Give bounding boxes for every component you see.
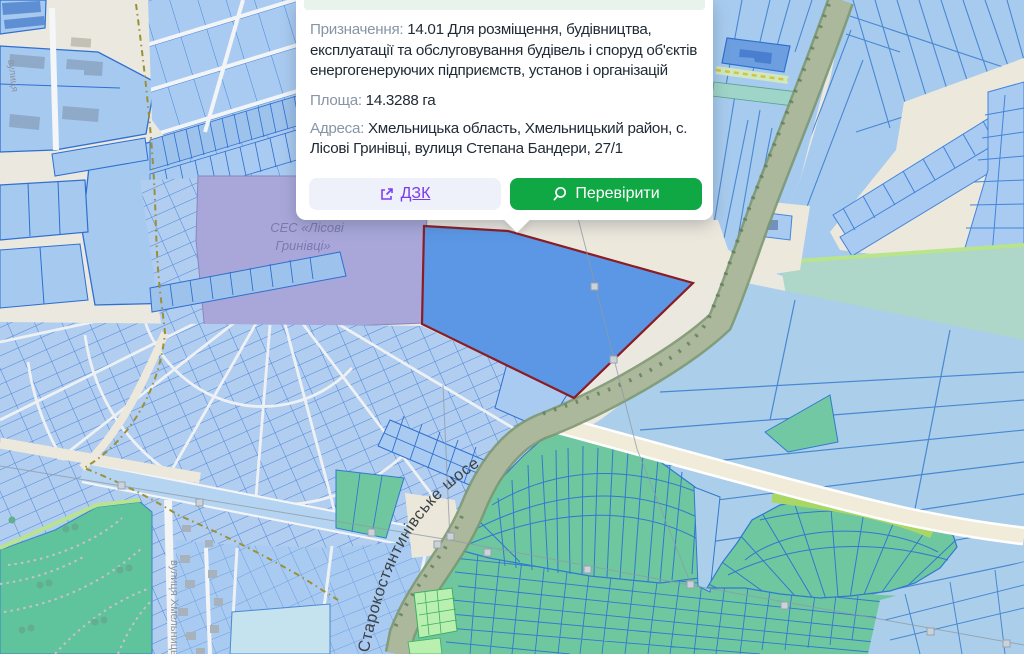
svg-text:СЕС «Лісові: СЕС «Лісові bbox=[270, 220, 345, 235]
svg-text:Гринівці»: Гринівці» bbox=[275, 238, 330, 253]
svg-text:вулиця Хмельницька: вулиця Хмельницька bbox=[168, 560, 180, 654]
